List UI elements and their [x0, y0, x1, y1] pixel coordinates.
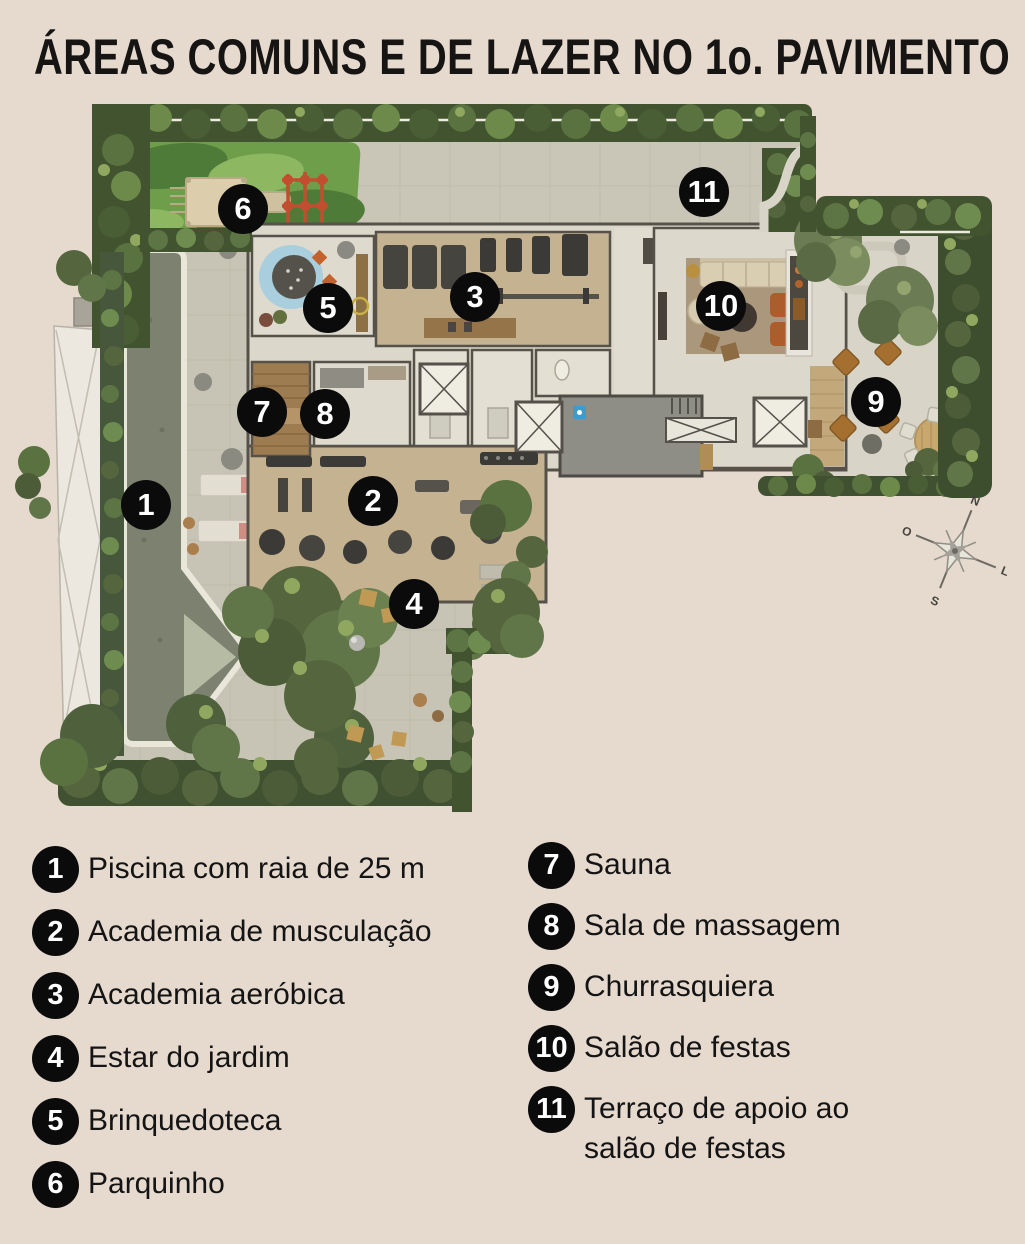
legend-item-8: 8Sala de massagem	[528, 903, 1008, 964]
legend-item-label: Academia aeróbica	[79, 972, 345, 1015]
plan-marker-10: 10	[696, 281, 746, 331]
compass-south-label: S	[928, 593, 941, 609]
legend-item-number: 4	[32, 1035, 79, 1082]
legend-item-number: 8	[528, 903, 575, 950]
legend-item-number: 5	[32, 1098, 79, 1145]
legend-item-1: 1Piscina com raia de 25 m	[32, 846, 512, 909]
legend-item-label: Piscina com raia de 25 m	[79, 846, 425, 889]
plan-marker-2: 2	[348, 476, 398, 526]
plan-marker-1: 1	[121, 480, 171, 530]
legend-item-label: Terraço de apoio ao salão de festas	[575, 1086, 849, 1169]
plan-marker-3: 3	[450, 272, 500, 322]
legend-item-label: Parquinho	[79, 1161, 225, 1204]
legend-item-label: Academia de musculação	[79, 909, 432, 952]
compass-east-label: L	[999, 563, 1011, 579]
legend-item-2: 2Academia de musculação	[32, 909, 512, 972]
legend-item-number: 1	[32, 846, 79, 893]
legend-item-6: 6Parquinho	[32, 1161, 512, 1224]
legend-item-4: 4Estar do jardim	[32, 1035, 512, 1098]
legend-item-label: Sala de massagem	[575, 903, 841, 946]
legend-item-number: 10	[528, 1025, 575, 1072]
legend-item-label: Salão de festas	[575, 1025, 791, 1068]
neighbor-roof	[54, 298, 104, 756]
legend-item-10: 10Salão de festas	[528, 1025, 1008, 1086]
legend-item-label: Sauna	[575, 842, 671, 885]
legend-item-number: 7	[528, 842, 575, 889]
legend-item-label: Brinquedoteca	[79, 1098, 281, 1141]
legend-item-number: 9	[528, 964, 575, 1011]
page: ÁREAS COMUNS E DE LAZER NO 1o. PAVIMENTO	[0, 0, 1025, 1244]
compass-west-label: O	[900, 523, 914, 539]
legend-item-number: 3	[32, 972, 79, 1019]
legend-item-7: 7Sauna	[528, 842, 1008, 903]
plan-marker-9: 9	[851, 377, 901, 427]
legend-item-number: 6	[32, 1161, 79, 1208]
legend-item-label: Estar do jardim	[79, 1035, 290, 1078]
plan-marker-8: 8	[300, 389, 350, 439]
plan-marker-5: 5	[303, 283, 353, 333]
plan-marker-11: 11	[679, 167, 729, 217]
legend-item-3: 3Academia aeróbica	[32, 972, 512, 1035]
legend-item-9: 9Churrasquiera	[528, 964, 1008, 1025]
plan-marker-6: 6	[218, 184, 268, 234]
legend-item-number: 11	[528, 1086, 575, 1133]
plan-marker-7: 7	[237, 387, 287, 437]
plan-marker-4: 4	[389, 579, 439, 629]
legend-item-number: 2	[32, 909, 79, 956]
legend-item-11: 11Terraço de apoio ao salão de festas	[528, 1086, 1008, 1169]
legend-item-label: Churrasquiera	[575, 964, 774, 1007]
legend-column-2: 7Sauna8Sala de massagem9Churrasquiera10S…	[528, 842, 1008, 1169]
legend-column-1: 1Piscina com raia de 25 m2Academia de mu…	[32, 846, 512, 1224]
legend-item-5: 5Brinquedoteca	[32, 1098, 512, 1161]
